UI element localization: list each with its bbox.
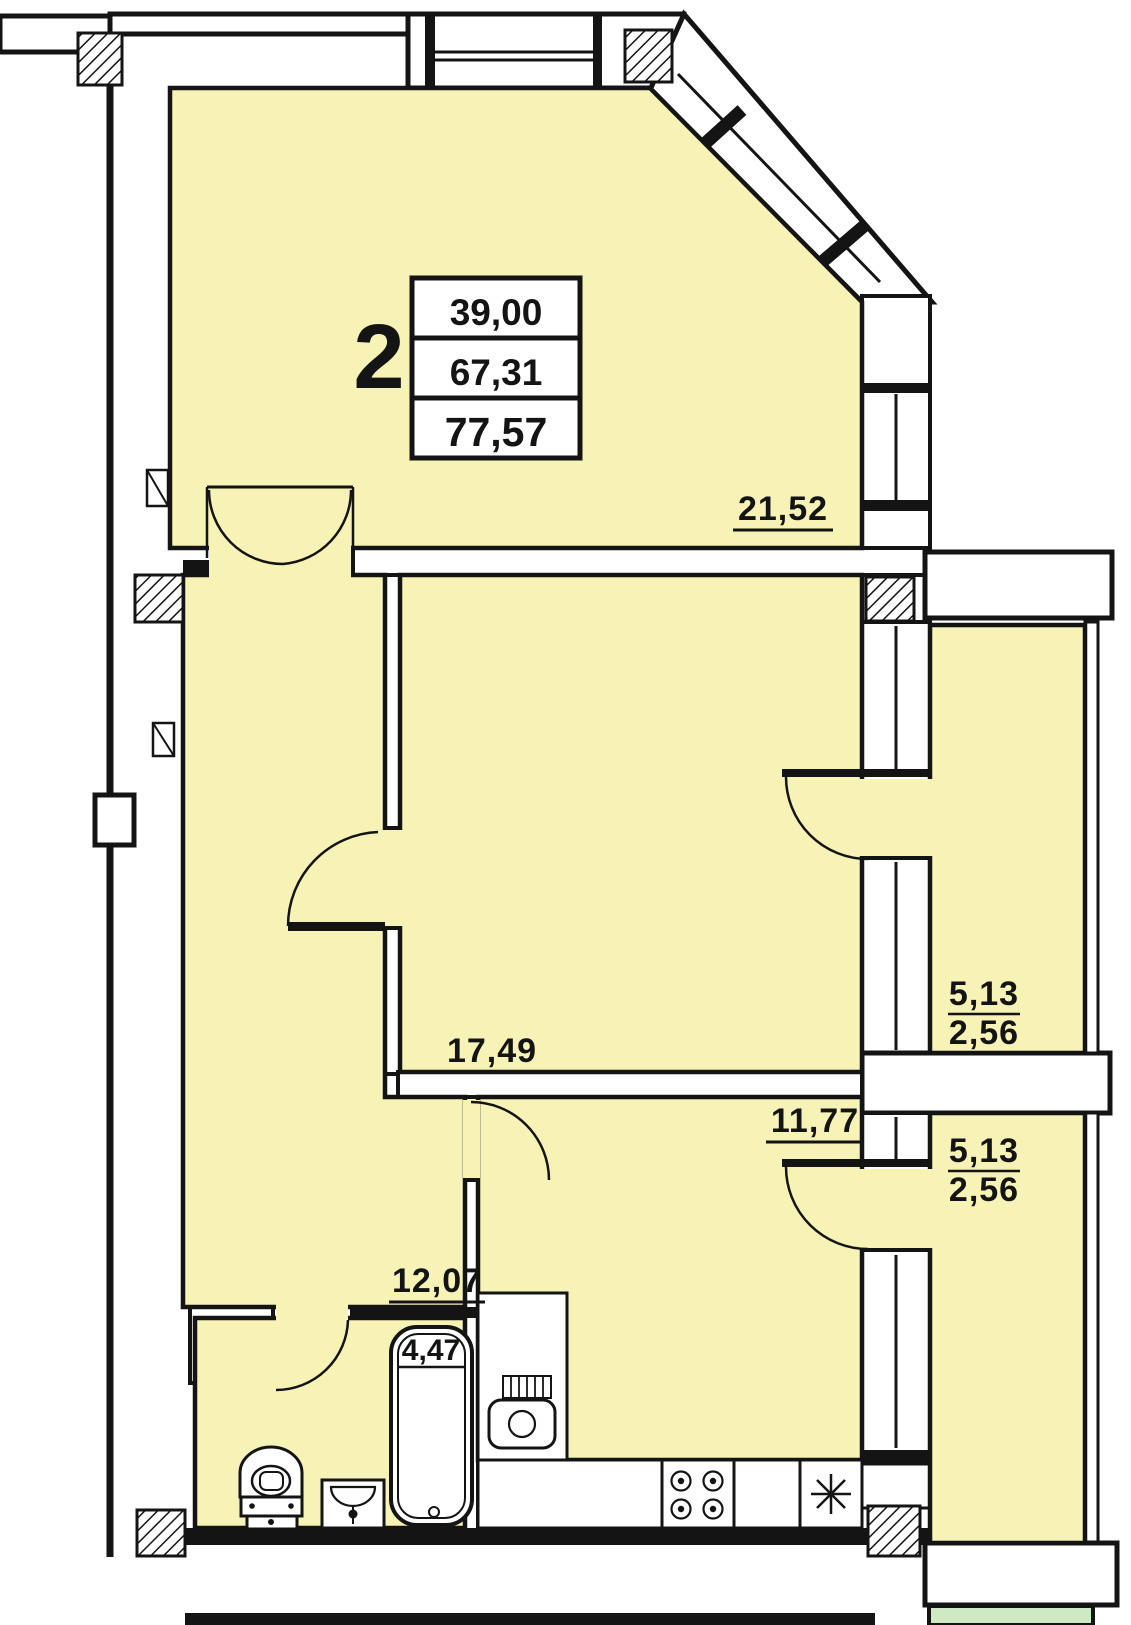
living-area-value: 39,00 [450,292,543,333]
balcony-upper-area-counted: 2,56 [949,1014,1019,1052]
total-area-value: 77,57 [445,409,548,455]
bathroom-area: 4,47 [402,1334,460,1367]
balcony-lower-label: 5,13 2,56 [948,1132,1020,1209]
vent-icon [800,1460,862,1528]
stove-icon [662,1460,734,1528]
kitchen-area: 11,77 [771,1102,859,1140]
balcony-upper-area-full: 5,13 [949,975,1019,1013]
floor-plan-page: 2 39,00 67,31 77,57 21,52 17,49 11,77 12… [0,0,1131,1625]
toilet-icon [240,1447,302,1529]
kitchen-sink-icon [478,1293,567,1460]
balcony-lower-area-counted: 2,56 [949,1171,1019,1209]
floor-plan-drawing: 2 39,00 67,31 77,57 21,52 17,49 11,77 12… [0,0,1131,1625]
rooms [170,88,1085,1543]
balcony-upper-label: 5,13 2,56 [948,975,1020,1052]
washbasin-icon [322,1480,384,1528]
apartment-area-value: 67,31 [450,352,543,393]
unit-number: 2 [353,306,404,408]
balcony-lower-area-full: 5,13 [949,1132,1019,1170]
living-room-area: 21,52 [738,490,828,528]
neighbor-unit-area [929,1606,1093,1625]
hallway-area: 12,07 [392,1262,482,1300]
bedroom [400,575,862,1072]
bedroom-area: 17,49 [447,1032,537,1070]
